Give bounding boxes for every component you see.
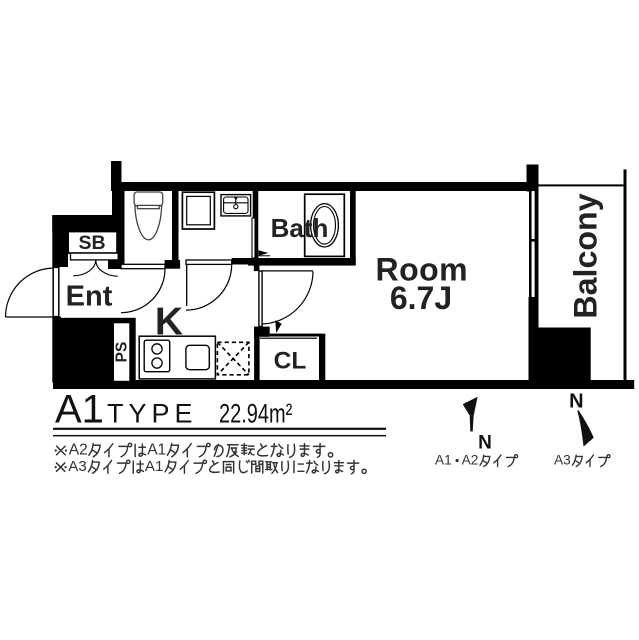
svg-text:A2: A2 xyxy=(69,442,88,459)
svg-text:A3: A3 xyxy=(68,458,86,475)
svg-text:SB: SB xyxy=(78,232,105,254)
svg-text:Balcony: Balcony xyxy=(568,193,604,318)
svg-text:TYPE: TYPE xyxy=(107,399,198,429)
svg-text:A2: A2 xyxy=(462,453,479,468)
svg-text:K: K xyxy=(155,301,183,344)
svg-text:Ent: Ent xyxy=(66,281,113,313)
svg-text:6.7J: 6.7J xyxy=(390,280,452,316)
svg-text:A1: A1 xyxy=(147,442,166,459)
svg-text:N: N xyxy=(478,433,492,454)
svg-text:A1: A1 xyxy=(145,458,163,475)
svg-text:PS: PS xyxy=(114,342,131,363)
svg-text:CL: CL xyxy=(274,348,307,375)
svg-text:Bath: Bath xyxy=(271,213,329,243)
svg-text:A1: A1 xyxy=(435,453,452,468)
svg-text:N: N xyxy=(569,391,583,413)
svg-text:22.94m²: 22.94m² xyxy=(219,399,292,430)
svg-text:A1: A1 xyxy=(55,388,104,432)
svg-text:A3: A3 xyxy=(554,453,571,468)
